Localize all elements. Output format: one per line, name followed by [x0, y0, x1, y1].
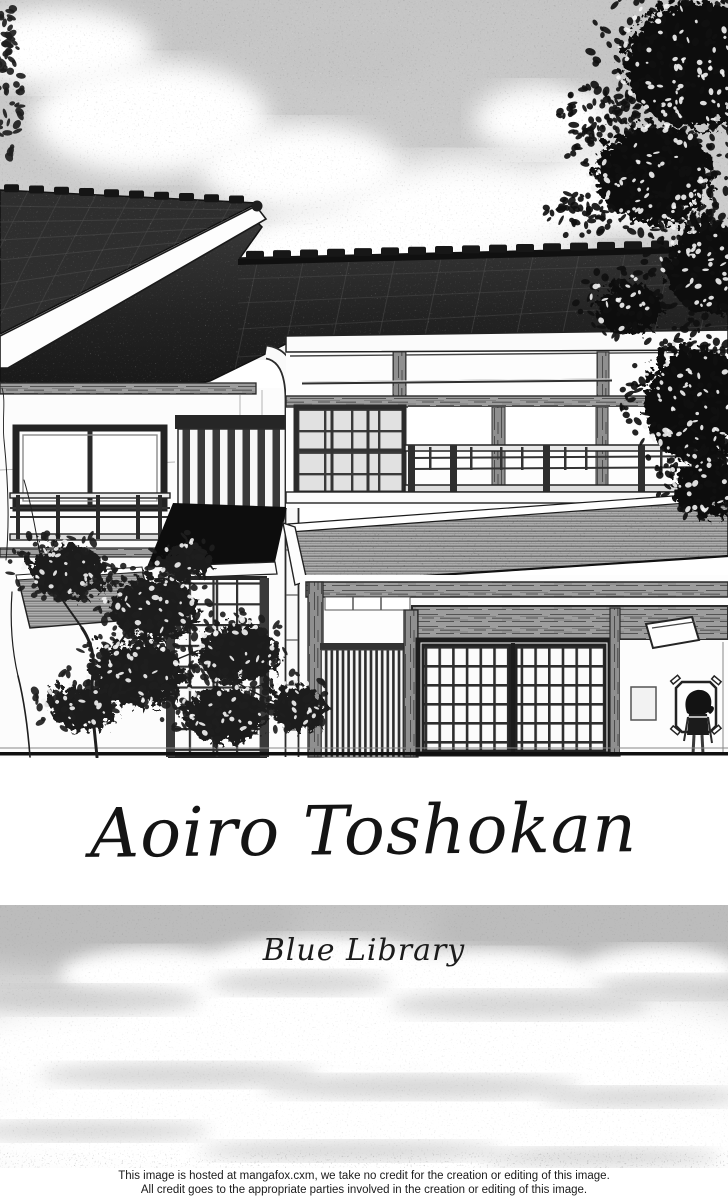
slat-gate [175, 415, 290, 512]
ground-floor [300, 575, 728, 757]
entrance-doors [418, 640, 610, 754]
subtitle-wrap: Blue Library [0, 933, 728, 968]
house-illustration [0, 0, 728, 758]
manga-page: Aoiro Toshokan [0, 0, 728, 1199]
disclaimer-line-1: This image is hosted at mangafox.cxm, we… [0, 1170, 728, 1184]
wall-beam [0, 383, 256, 394]
disclaimer-line-2: All credit goes to the appropriate parti… [0, 1184, 728, 1198]
slat-screen [320, 643, 404, 757]
wall-notice [631, 687, 656, 720]
series-title: Aoiro Toshokan [90, 789, 638, 874]
shoji-window [296, 407, 404, 493]
header-beam [306, 582, 728, 597]
title-band: Aoiro Toshokan [0, 758, 728, 905]
hosting-disclaimer: This image is hosted at mangafox.cxm, we… [0, 1168, 728, 1199]
series-subtitle: Blue Library [263, 933, 466, 968]
